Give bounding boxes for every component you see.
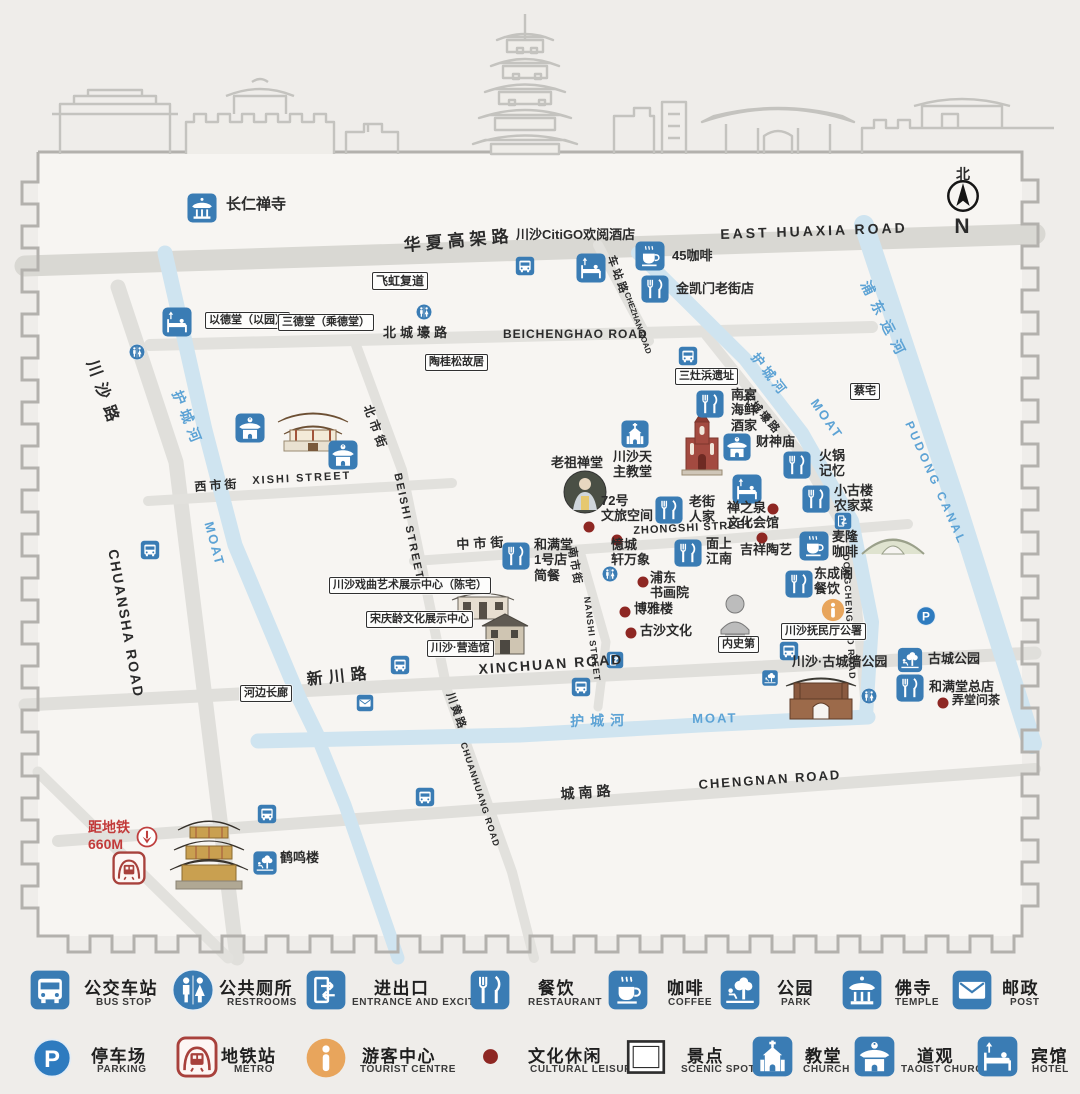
hotel-icon (162, 307, 192, 337)
svg-text:P: P (922, 609, 930, 623)
legend-label-en: CHURCH (803, 1064, 850, 1075)
restroom-icon (602, 566, 618, 582)
map-label: 川沙天 主教堂 (613, 449, 652, 480)
legend-dot-icon (482, 1048, 499, 1065)
cultural-leisure-dot (638, 577, 649, 588)
boxed-site-label: 河边长廊 (240, 685, 292, 702)
legend-restaurant-icon (470, 970, 510, 1010)
boxed-site-label: 川沙戏曲艺术展示中心（陈宅） (329, 577, 491, 594)
legend-label-zh: 咖啡 (667, 974, 704, 999)
legend-church-icon (752, 1036, 793, 1077)
legend-temple-icon (842, 970, 882, 1010)
legend-restroom-icon (172, 969, 214, 1011)
map-label: 弄堂问茶 (952, 693, 1000, 707)
legend-label-zh: 餐饮 (538, 974, 575, 999)
boxed-site-label: 三灶浜遗址 (675, 368, 738, 385)
legend-label-en: PARK (781, 997, 811, 1008)
stone-bridge-illustration (860, 526, 926, 556)
legend-label-zh: 公共厕所 (219, 974, 293, 999)
legend-taoist-icon (854, 1036, 895, 1077)
north-compass-icon (944, 177, 982, 215)
map-label: 古沙文化 (640, 623, 692, 638)
map-label: 小古楼 农家菜 (834, 483, 873, 514)
map-label: 川沙CitiGO欢阅酒店 (516, 227, 635, 242)
hotel-icon (576, 253, 606, 283)
entrance-icon (835, 513, 852, 530)
restaurant-icon (641, 275, 669, 303)
map-label: 长仁禅寺 (226, 196, 286, 214)
legend-label-en: BUS STOP (96, 997, 152, 1008)
map-label: 金凯门老街店 (676, 281, 754, 296)
map-label: 博雅楼 (634, 601, 673, 616)
legend-label-en: HOTEL (1032, 1064, 1069, 1075)
bus-icon (258, 805, 277, 824)
restroom-icon (416, 304, 432, 320)
restaurant-icon (785, 570, 813, 598)
legend-label-en: TEMPLE (895, 997, 939, 1008)
heminglou-pagoda-illustration (168, 808, 250, 892)
coffee-icon (799, 531, 829, 561)
map-label: 北城壕路 (383, 325, 451, 340)
boxed-site-label: 飞虹复道 (372, 272, 428, 290)
taoist-icon (723, 433, 751, 461)
boxed-site-label: 川沙抚民厅公署 (781, 623, 866, 640)
legend-label-en: ENTRANCE AND EXCIT (352, 997, 475, 1008)
map-label: 老祖禅堂 (551, 455, 603, 470)
church-icon (621, 420, 649, 448)
map-label: 川沙·古城墙公园 (792, 654, 887, 669)
legend-entrance-icon (306, 970, 346, 1010)
legend-label-en: SCENIC SPOT (681, 1064, 755, 1075)
legend-tourist-icon (306, 1038, 346, 1078)
map-label: 吉祥陶艺 (740, 542, 792, 557)
restaurant-icon (896, 674, 924, 702)
post-icon (357, 695, 374, 712)
park-icon (762, 670, 778, 686)
map-label: 浦东 书画院 (650, 570, 689, 601)
bus-icon (516, 257, 535, 276)
restaurant-icon (802, 485, 830, 513)
reddown-icon (136, 826, 158, 848)
boxed-site-label: 三德堂（乘德堂） (278, 314, 374, 331)
map-label: 鹤鸣楼 (280, 850, 319, 865)
parking-icon: P (916, 606, 936, 626)
legend-hotel-icon (977, 1036, 1018, 1077)
restroom-icon (129, 344, 145, 360)
boxed-site-label: 蔡宅 (850, 383, 880, 400)
map-label: 72号 文旅空间 (601, 493, 653, 524)
map-label: 古城公园 (928, 651, 980, 666)
boxed-site-label: 川沙·营造馆 (427, 640, 494, 657)
legend-label-zh: 公园 (777, 974, 814, 999)
skyline-illustration (28, 4, 1056, 160)
map-label: 南宫 海鲜 酒家 (731, 387, 757, 433)
restroom-icon (861, 688, 877, 704)
map-label: 和满堂 1号店 简餐 (534, 537, 573, 583)
map-label: 北 (956, 166, 970, 183)
legend-post-icon (952, 970, 992, 1010)
bus-icon (416, 788, 435, 807)
legend-label-en: PARKING (97, 1064, 147, 1075)
legend-scenic-icon (626, 1037, 666, 1077)
legend-label-en: CULTURAL LEISURE (530, 1064, 639, 1075)
map-label: 火锅 记忆 (819, 448, 845, 479)
restaurant-icon (674, 539, 702, 567)
cultural-leisure-dot (584, 522, 595, 533)
map-label: N (954, 215, 969, 240)
legend-coffee-icon (608, 970, 648, 1010)
legend-label-en: COFFEE (668, 997, 712, 1008)
restaurant-icon (783, 451, 811, 479)
legend-bus-icon (30, 970, 70, 1010)
legend-label-zh: 进出口 (374, 974, 430, 999)
bus-icon (572, 678, 591, 697)
park-icon (253, 851, 277, 875)
legend-park-icon (720, 970, 760, 1010)
bus-icon (141, 541, 160, 560)
neishidi-bust-illustration (717, 592, 753, 638)
legend-metro-icon (176, 1036, 218, 1078)
legend-label-en: POST (1010, 997, 1040, 1008)
park-icon (898, 648, 923, 673)
map-label: 憶城 轩万象 (611, 537, 650, 568)
boxed-site-label: 内史第 (718, 636, 759, 653)
map-label: 45咖啡 (672, 248, 712, 263)
map-label: 中市街 (456, 534, 508, 552)
map-label: 距地铁 660M (88, 819, 130, 852)
map-label: 护城河 (570, 712, 630, 730)
legend-label-en: TOURIST CENTRE (360, 1064, 456, 1075)
boxed-site-label: 宋庆龄文化展示中心 (366, 611, 473, 628)
catholic-church-illustration (679, 410, 725, 478)
restaurant-icon (655, 496, 683, 524)
map-label: 麦隆 咖啡 (832, 529, 858, 560)
legend-parking-icon: P (32, 1038, 72, 1078)
boxed-site-label: 陶桂松故居 (425, 354, 488, 371)
legend-label-en: METRO (234, 1064, 273, 1075)
legend-label-zh: 公交车站 (84, 974, 158, 999)
bus-icon (679, 347, 698, 366)
map-label: 东成阁 餐饮 (814, 566, 853, 597)
svg-text:P: P (44, 1046, 60, 1073)
temple-icon (187, 193, 217, 223)
map-label: BEICHENGHAO ROAD (503, 327, 648, 341)
chuansha-old-town-map: P 华夏高架路EAST HUAXIA ROAD北城壕路BEICHENGHAO R… (0, 0, 1080, 1094)
cultural-leisure-dot (626, 628, 637, 639)
restaurant-icon (696, 390, 724, 418)
coffee-icon (635, 241, 665, 271)
cultural-leisure-dot (620, 607, 631, 618)
metro-icon (112, 851, 146, 885)
map-label: 禅之泉 文化会馆 (727, 500, 779, 531)
map-label: 面上 江南 (706, 536, 732, 567)
legend-label-zh: 佛寺 (895, 974, 932, 999)
map-label: MOAT (692, 710, 738, 726)
legend-label-en: RESTROOMS (227, 997, 297, 1008)
legend-label-en: RESTAURANT (528, 997, 602, 1008)
map-label: 老街 人家 (689, 494, 715, 525)
taoist-icon (328, 440, 358, 470)
map-label: 财神庙 (756, 434, 795, 449)
taoist-icon (235, 413, 265, 443)
tourist-icon (822, 599, 845, 622)
cultural-leisure-dot (938, 698, 949, 709)
legend-label-zh: 邮政 (1002, 974, 1039, 999)
bus-icon (391, 656, 410, 675)
